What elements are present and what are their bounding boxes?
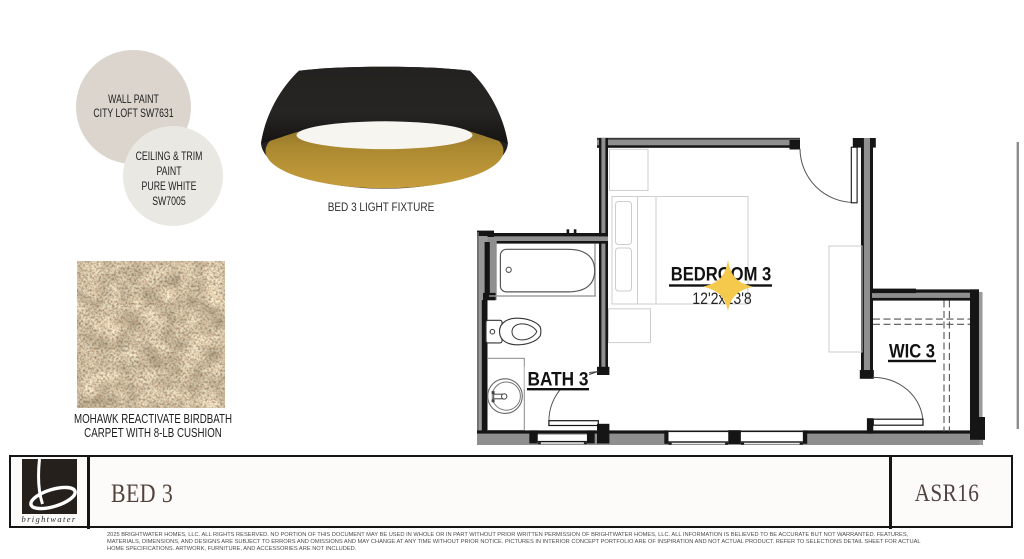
svg-text:BATH 3: BATH 3 xyxy=(528,369,589,391)
svg-text:WIC 3: WIC 3 xyxy=(889,342,935,363)
